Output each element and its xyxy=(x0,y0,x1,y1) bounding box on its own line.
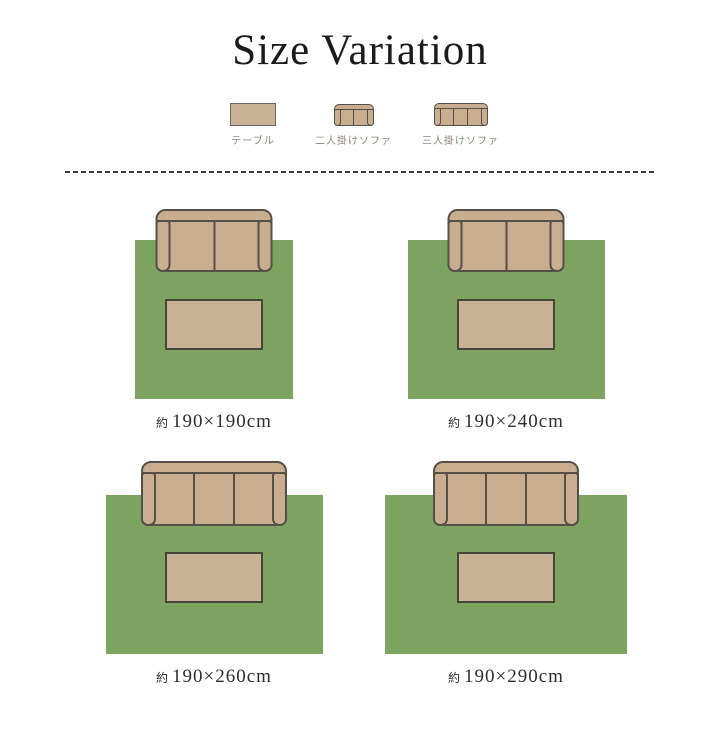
size-label: 約190×240cm xyxy=(381,411,631,433)
sofa-seats xyxy=(171,220,258,270)
sofa-armrest-left xyxy=(141,472,156,526)
legend-item-three-seat-sofa: 三人掛けソファ xyxy=(422,100,499,147)
size-label: 約190×190cm xyxy=(89,411,339,433)
sofa-armrest-left xyxy=(448,220,463,272)
size-dimensions: 190×240cm xyxy=(464,411,564,432)
sofa-seats xyxy=(448,472,564,524)
size-dimensions: 190×260cm xyxy=(172,666,272,687)
sofa-seats xyxy=(156,472,272,524)
table-icon xyxy=(457,552,555,603)
sofa-backrest-line xyxy=(156,220,273,222)
three-seat-sofa-icon xyxy=(433,461,579,526)
two-seat-sofa-icon xyxy=(448,209,565,272)
table-icon xyxy=(457,299,555,350)
size-diagram-190x260: 約190×260cm xyxy=(89,461,339,688)
size-dimensions: 190×290cm xyxy=(464,666,564,687)
approx-prefix: 約 xyxy=(156,416,169,430)
legend-label-two-seat-sofa: 二人掛けソファ xyxy=(315,132,392,147)
room-scene xyxy=(106,461,323,654)
sofa-armrest-right xyxy=(258,220,273,272)
dashed-divider xyxy=(65,171,655,173)
sofa-seats xyxy=(463,220,550,270)
sofa-seats xyxy=(341,109,367,125)
sofa-armrest-left xyxy=(433,472,448,526)
two-seat-sofa-icon xyxy=(334,104,374,126)
approx-prefix: 約 xyxy=(448,671,461,685)
three-seat-sofa-icon xyxy=(141,461,287,526)
legend-icon-box xyxy=(334,100,374,126)
legend-icon-box xyxy=(230,100,276,126)
sofa-backrest-line xyxy=(448,220,565,222)
size-diagram-190x240: 約190×240cm xyxy=(381,209,631,433)
approx-prefix: 約 xyxy=(448,416,461,430)
legend-icon-box xyxy=(434,100,488,126)
size-diagram-190x190: 約190×190cm xyxy=(89,209,339,433)
table-icon xyxy=(165,299,263,350)
two-seat-sofa-icon xyxy=(156,209,273,272)
room-scene xyxy=(135,209,293,399)
approx-prefix: 約 xyxy=(156,671,169,685)
sofa-armrest-right xyxy=(550,220,565,272)
table-icon xyxy=(230,103,276,126)
size-diagram-190x290: 約190×290cm xyxy=(381,461,631,688)
sofa-armrest-right xyxy=(367,109,374,126)
sofa-armrest-left xyxy=(334,109,341,126)
sofa-backrest-line xyxy=(433,472,579,474)
legend-label-three-seat-sofa: 三人掛けソファ xyxy=(422,132,499,147)
sofa-backrest-line xyxy=(434,108,488,109)
legend-item-table: テーブル xyxy=(221,100,285,147)
size-diagrams-grid: 約190×190cm 約190×240cm xyxy=(89,209,631,688)
sofa-armrest-left xyxy=(434,108,441,126)
room-scene xyxy=(408,209,605,399)
room-scene xyxy=(385,461,627,654)
page-title: Size Variation xyxy=(0,26,720,75)
sofa-backrest-line xyxy=(141,472,287,474)
sofa-seats xyxy=(441,108,481,125)
size-label: 約190×260cm xyxy=(89,666,339,688)
size-dimensions: 190×190cm xyxy=(172,411,272,432)
sofa-armrest-left xyxy=(156,220,171,272)
size-label: 約190×290cm xyxy=(381,666,631,688)
table-icon xyxy=(165,552,263,603)
legend: テーブル 二人掛けソファ 三人掛けソファ xyxy=(0,100,720,147)
three-seat-sofa-icon xyxy=(434,103,488,126)
sofa-armrest-right xyxy=(481,108,488,126)
sofa-armrest-right xyxy=(272,472,287,526)
legend-item-two-seat-sofa: 二人掛けソファ xyxy=(315,100,392,147)
sofa-armrest-right xyxy=(564,472,579,526)
legend-label-table: テーブル xyxy=(231,132,274,147)
